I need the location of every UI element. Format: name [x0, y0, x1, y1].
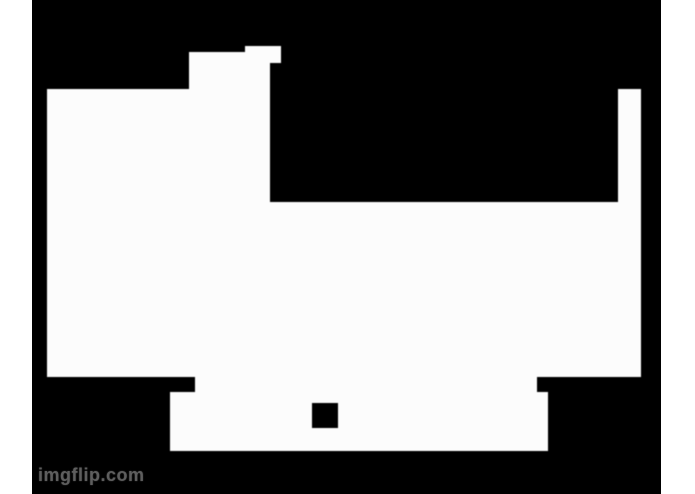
silhouette-head-tab	[245, 46, 281, 63]
silhouette-lower-band	[195, 377, 537, 392]
hole-bottom-square-hole	[312, 403, 338, 428]
white-silhouette	[32, 0, 661, 494]
page-background: imgflip.com	[0, 0, 695, 494]
imgflip-watermark: imgflip.com	[38, 466, 145, 484]
silhouette-right-bar	[618, 89, 641, 202]
silhouette-bottom-bar	[170, 392, 548, 451]
silhouette-head-block	[189, 52, 270, 202]
meme-image: imgflip.com	[32, 0, 661, 494]
silhouette-mid-body	[270, 202, 641, 377]
